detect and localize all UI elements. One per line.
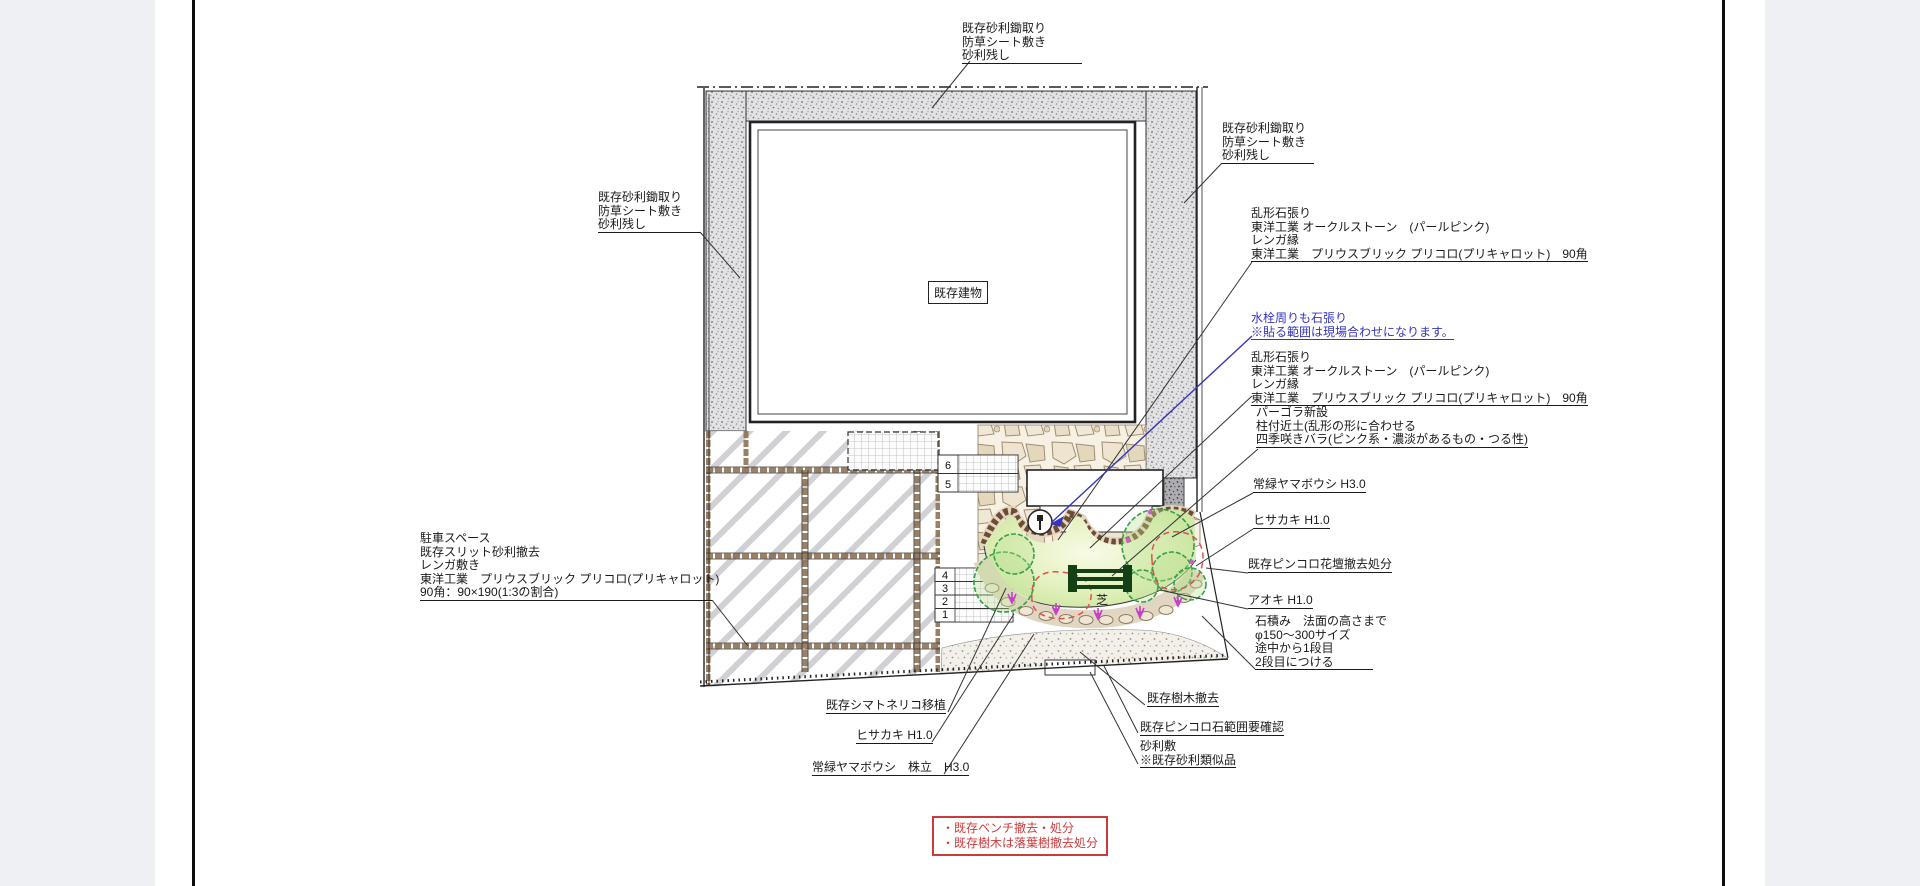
annotation-line: ※既存砂利類似品 [1140, 754, 1236, 769]
annotation-line: 柱付近土(乱形の形に合わせる [1256, 420, 1528, 434]
annotation-stone-paving-lower: 乱形石張り 東洋工業 オークルストーン (パールピンク) レンガ縁 東洋工業 プ… [1251, 351, 1588, 406]
annotation-line: 既存樹木撤去 [1147, 692, 1219, 707]
annotation-line: レンガ縁 [1251, 234, 1588, 248]
annotation-line: 90角：90×190(1:3の割合) [420, 586, 712, 601]
annotation-line: 石積み 法面の高さまで [1255, 615, 1387, 629]
pergola-bench [1068, 565, 1132, 592]
note-line: ・既存ベンチ撤去・処分 [942, 821, 1098, 836]
annotation-line: 途中から1段目 [1255, 642, 1387, 656]
step-number: 6 [945, 460, 951, 472]
annotation-line: ヒサカキ H1.0 [856, 729, 933, 744]
step-number: 3 [942, 583, 948, 595]
annotation-line: 東洋工業 プリウスブリック プリコロ(プリキャロット) 90角 [1251, 392, 1588, 407]
annotation-line: 既存ピンコロ花壇撤去処分 [1248, 558, 1392, 573]
annotation-line: φ150～300サイズ [1255, 629, 1387, 643]
annotation-line: 水栓周りも石張り [1251, 312, 1454, 326]
annotation-aoki: アオキ H1.0 [1248, 594, 1313, 609]
annotation-line: 防草シート敷き [598, 205, 700, 219]
annotation-line: パーゴラ新設 [1256, 406, 1528, 420]
annotation-pincoro-flowerbed: 既存ピンコロ花壇撤去処分 [1248, 558, 1392, 573]
annotation-parking: 駐車スペース 既存スリット砂利撤去 レンガ敷き 東洋工業 プリウスブリック プリ… [420, 532, 719, 601]
annotation-line: 防草シート敷き [962, 36, 1082, 50]
annotation-shimatoneriko: 既存シマトネリコ移植 [826, 699, 946, 714]
annotation-line: 砂利残し [962, 49, 1082, 64]
annotation-line: 既存シマトネリコ移植 [826, 699, 946, 714]
building-label: 既存建物 [928, 281, 988, 304]
annotation-line: 砂利敷 [1140, 740, 1236, 754]
annotation-evergreen-dogwood-right: 常緑ヤマボウシ H3.0 [1253, 478, 1366, 493]
slit-mesh-area [848, 432, 938, 470]
annotation-gravel-left: 既存砂利鋤取り 防草シート敷き 砂利残し [598, 191, 700, 233]
note-box: ・既存ベンチ撤去・処分 ・既存樹木は落葉樹撤去処分 [932, 816, 1108, 856]
annotation-line: 乱形石張り [1251, 207, 1588, 221]
annotation-pincoro-range: 既存ピンコロ石範囲要確認 [1140, 721, 1284, 736]
annotation-line: アオキ H1.0 [1248, 594, 1313, 609]
lawn-label: 芝 [1096, 591, 1108, 608]
annotation-line: 東洋工業 プリウスブリック プリコロ(プリキャロット) 90角 [1251, 248, 1588, 263]
annotation-line: 東洋工業 プリウスブリック プリコロ(プリキャロット) [420, 573, 719, 587]
steps-upper: 6 5 [938, 455, 1018, 492]
annotation-line: 既存砂利鋤取り [962, 22, 1082, 36]
annotation-line: 東洋工業 オークルストーン (パールピンク) [1251, 221, 1588, 235]
step-number: 2 [942, 596, 948, 608]
annotation-line: 乱形石張り [1251, 351, 1588, 365]
annotation-pergola: パーゴラ新設 柱付近土(乱形の形に合わせる 四季咲きバラ(ピンク系・濃淡があるも… [1256, 406, 1528, 448]
annotation-evergreen-dogwood-bottom: 常緑ヤマボウシ 株立 H3.0 [812, 761, 969, 776]
annotation-hisakaki-bottom: ヒサカキ H1.0 [856, 729, 933, 744]
annotation-line: 駐車スペース [420, 532, 719, 546]
annotation-gravel-laying: 砂利敷 ※既存砂利類似品 [1140, 740, 1236, 768]
annotation-line: 常緑ヤマボウシ 株立 H3.0 [812, 761, 969, 776]
annotation-line: 2段目につける [1255, 656, 1373, 671]
annotation-stone-paving-upper: 乱形石張り 東洋工業 オークルストーン (パールピンク) レンガ縁 東洋工業 プ… [1251, 207, 1588, 262]
site-plan-drawing: 6 5 4 3 2 1 [0, 0, 1920, 886]
annotation-line: 砂利残し [1222, 149, 1314, 164]
annotation-line: 砂利残し [598, 218, 700, 233]
annotation-faucet-note: 水栓周りも石張り ※貼る範囲は現場合わせになります。 [1251, 312, 1454, 340]
annotation-line: ヒサカキ H1.0 [1253, 514, 1330, 529]
annotation-tree-removal: 既存樹木撤去 [1147, 692, 1219, 707]
parking-area [706, 431, 940, 689]
step-number: 1 [942, 609, 948, 621]
annotation-line: 既存砂利鋤取り [1222, 122, 1314, 136]
step-number: 5 [945, 479, 951, 491]
annotation-line: 常緑ヤマボウシ H3.0 [1253, 478, 1366, 493]
annotation-line: 東洋工業 オークルストーン (パールピンク) [1251, 365, 1588, 379]
annotation-stone-piling: 石積み 法面の高さまで φ150～300サイズ 途中から1段目 2段目につける [1255, 615, 1387, 670]
landscape-plan-page: { "colors": { "accent_blue": "#3535bd", … [0, 0, 1920, 886]
annotation-line: 既存スリット砂利撤去 [420, 546, 719, 560]
annotation-line: 防草シート敷き [1222, 136, 1314, 150]
annotation-hisakaki-right: ヒサカキ H1.0 [1253, 514, 1330, 529]
annotation-line: レンガ縁 [1251, 378, 1588, 392]
existing-building [750, 122, 1135, 422]
note-line: ・既存樹木は落葉樹撤去処分 [942, 836, 1098, 851]
annotation-line: 既存ピンコロ石範囲要確認 [1140, 721, 1284, 736]
annotation-line: ※貼る範囲は現場合わせになります。 [1251, 326, 1454, 341]
annotation-gravel-top: 既存砂利鋤取り 防草シート敷き 砂利残し [962, 22, 1082, 64]
water-faucet [1028, 510, 1052, 534]
annotation-line: 四季咲きバラ(ピンク系・濃淡があるもの・つる性) [1256, 433, 1528, 448]
step-number: 4 [942, 570, 948, 582]
annotation-line: レンガ敷き [420, 559, 719, 573]
annotation-gravel-right: 既存砂利鋤取り 防草シート敷き 砂利残し [1222, 122, 1314, 164]
annotation-line: 既存砂利鋤取り [598, 191, 700, 205]
